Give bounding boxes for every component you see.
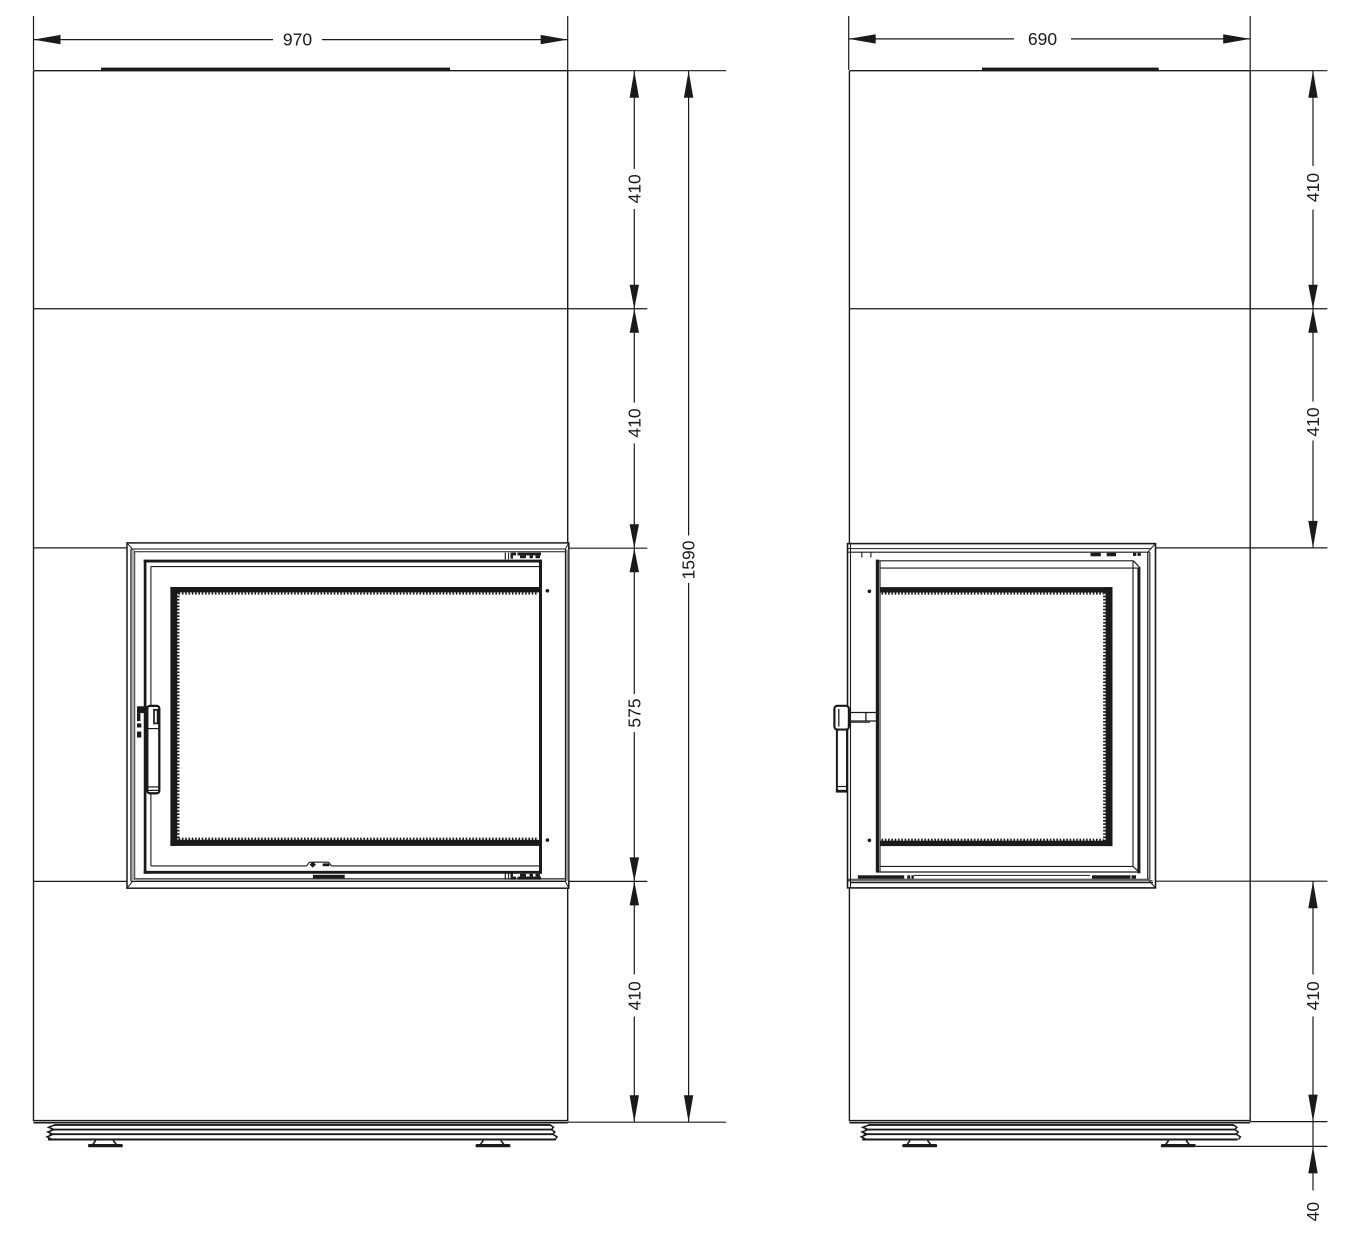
svg-text:40: 40 — [1303, 1202, 1323, 1222]
svg-text:690: 690 — [1028, 29, 1057, 49]
svg-text:410: 410 — [624, 408, 644, 437]
svg-text:970: 970 — [283, 30, 312, 50]
svg-text:410: 410 — [1303, 981, 1323, 1010]
svg-text:410: 410 — [624, 174, 644, 203]
svg-text:575: 575 — [624, 698, 644, 727]
svg-text:410: 410 — [1303, 173, 1323, 202]
svg-text:410: 410 — [1303, 407, 1323, 436]
svg-text:1590: 1590 — [679, 540, 699, 579]
svg-text:410: 410 — [624, 981, 644, 1010]
